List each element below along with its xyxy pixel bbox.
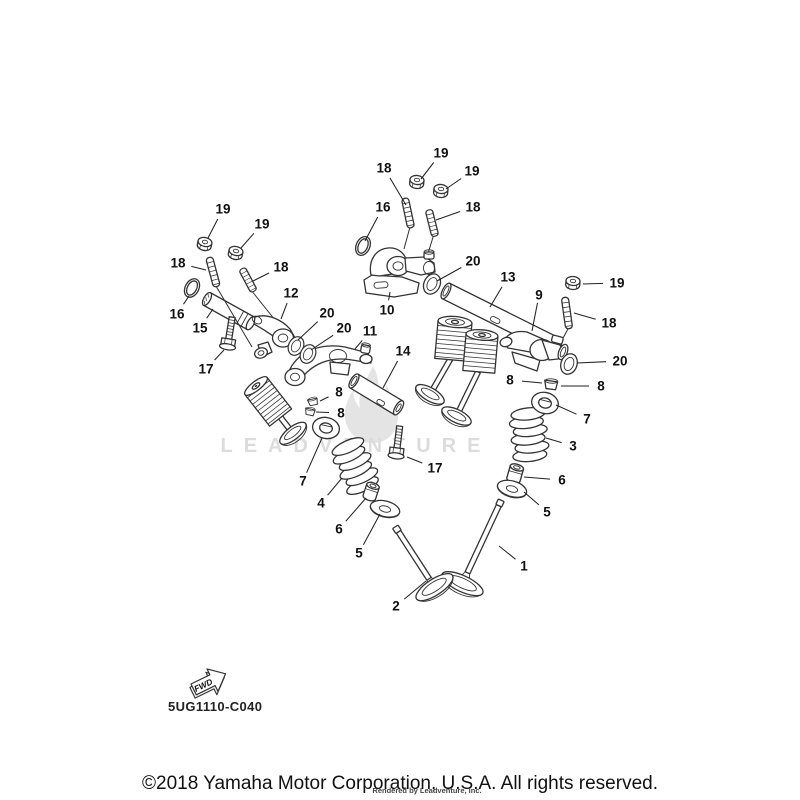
parts-diagram-page: LEADVENTURE xyxy=(0,0,800,800)
callout-leader-18 xyxy=(390,178,406,205)
callout-5: 5 xyxy=(355,546,363,561)
part-valve-cotter-8-a xyxy=(307,396,318,406)
callout-leader-19 xyxy=(208,219,218,238)
callout-leader-5 xyxy=(524,492,539,505)
part-spring-seat-5-right xyxy=(495,477,528,501)
callout-14: 14 xyxy=(395,344,411,359)
callout-leader-8 xyxy=(316,412,329,413)
callout-leader-17 xyxy=(215,350,224,360)
callout-leader-18 xyxy=(191,266,206,270)
part-stud-18-c xyxy=(401,198,414,229)
callout-18: 18 xyxy=(465,200,481,215)
callout-leader-16 xyxy=(184,296,190,304)
callout-leader-1 xyxy=(499,546,516,559)
callout-leader-8 xyxy=(320,397,329,401)
part-valve-cotter-8-b xyxy=(305,407,316,416)
callout-7: 7 xyxy=(299,474,307,489)
callout-8: 8 xyxy=(335,385,343,400)
diagram-code: 5UG1110-C040 xyxy=(168,699,262,714)
part-nut-19-a xyxy=(196,236,212,252)
part-valve-2 xyxy=(377,515,458,607)
callout-20: 20 xyxy=(319,306,334,321)
callout-1: 1 xyxy=(520,559,528,574)
part-oring-16-left xyxy=(181,276,202,300)
callout-leader-5 xyxy=(363,514,380,545)
callout-20: 20 xyxy=(336,321,351,336)
callout-leader-19 xyxy=(241,233,254,248)
callout-leader-3 xyxy=(546,438,562,443)
callout-19: 19 xyxy=(254,217,269,232)
callout-19: 19 xyxy=(215,202,230,217)
part-valve-spring-3 xyxy=(508,406,550,463)
callout-leader-15 xyxy=(207,309,213,318)
callout-leader-18 xyxy=(574,313,596,319)
callout-leader-8 xyxy=(522,381,542,383)
callout-leader-12 xyxy=(281,303,287,319)
callout-8: 8 xyxy=(337,406,345,421)
callout-9: 9 xyxy=(535,288,543,303)
callout-leader-20 xyxy=(298,322,318,340)
callout-20: 20 xyxy=(465,254,480,269)
callout-leader-18 xyxy=(253,273,269,281)
callout-19: 19 xyxy=(464,164,479,179)
part-stud-18-e xyxy=(561,297,572,329)
callout-8: 8 xyxy=(506,373,514,388)
part-oring-16-top xyxy=(353,234,373,257)
callout-leader-18 xyxy=(436,212,460,221)
part-rocker-arm-9 xyxy=(499,331,570,371)
callout-leader-17 xyxy=(407,457,422,463)
callout-6: 6 xyxy=(335,522,343,537)
callouts-layer: 1819191618201013919182019191818161512202… xyxy=(169,146,627,614)
callout-18: 18 xyxy=(170,256,186,271)
callout-2: 2 xyxy=(392,599,400,614)
callout-leader-6 xyxy=(524,477,550,479)
callout-6: 6 xyxy=(558,473,566,488)
callout-17: 17 xyxy=(427,461,442,476)
callout-15: 15 xyxy=(192,321,208,336)
callout-12: 12 xyxy=(283,286,298,301)
callout-19: 19 xyxy=(433,146,448,161)
callout-19: 19 xyxy=(609,276,624,291)
callout-leader-4 xyxy=(328,478,342,495)
callout-20: 20 xyxy=(612,354,627,369)
callout-11: 11 xyxy=(363,324,378,339)
callout-leader-19 xyxy=(583,283,603,284)
callout-leader-14 xyxy=(383,361,398,388)
callout-leader-13 xyxy=(490,287,502,307)
callout-4: 4 xyxy=(317,496,325,511)
part-valve-cotter-8-c xyxy=(544,378,558,389)
callout-3: 3 xyxy=(569,439,577,454)
fwd-arrow-icon: FWD xyxy=(186,663,232,704)
callout-leader-7 xyxy=(556,405,577,414)
rendered-by-text: Rendered by Leadventure, Inc. xyxy=(372,786,481,795)
callout-16: 16 xyxy=(169,307,185,322)
callout-8: 8 xyxy=(597,379,605,394)
part-nut-19-e xyxy=(565,276,580,290)
callout-16: 16 xyxy=(375,200,391,215)
callout-18: 18 xyxy=(601,316,617,331)
part-stud-18-a xyxy=(206,257,221,288)
callout-10: 10 xyxy=(379,303,394,318)
callout-18: 18 xyxy=(376,161,392,176)
callout-leader-20 xyxy=(577,362,606,363)
callout-7: 7 xyxy=(583,412,591,427)
callout-leader-16 xyxy=(365,217,378,241)
callout-leader-20 xyxy=(437,268,461,282)
callout-leader-19 xyxy=(446,179,461,190)
part-stud-18-d xyxy=(425,209,438,237)
callout-5: 5 xyxy=(543,505,551,520)
callout-13: 13 xyxy=(500,270,516,285)
diagram-canvas: LEADVENTURE xyxy=(0,0,800,800)
callout-17: 17 xyxy=(198,362,213,377)
callout-leader-6 xyxy=(346,498,366,521)
part-rocker-arm-12 xyxy=(251,314,295,359)
part-nut-19-d xyxy=(433,184,448,198)
callout-leader-19 xyxy=(421,163,434,180)
callout-18: 18 xyxy=(273,260,289,275)
